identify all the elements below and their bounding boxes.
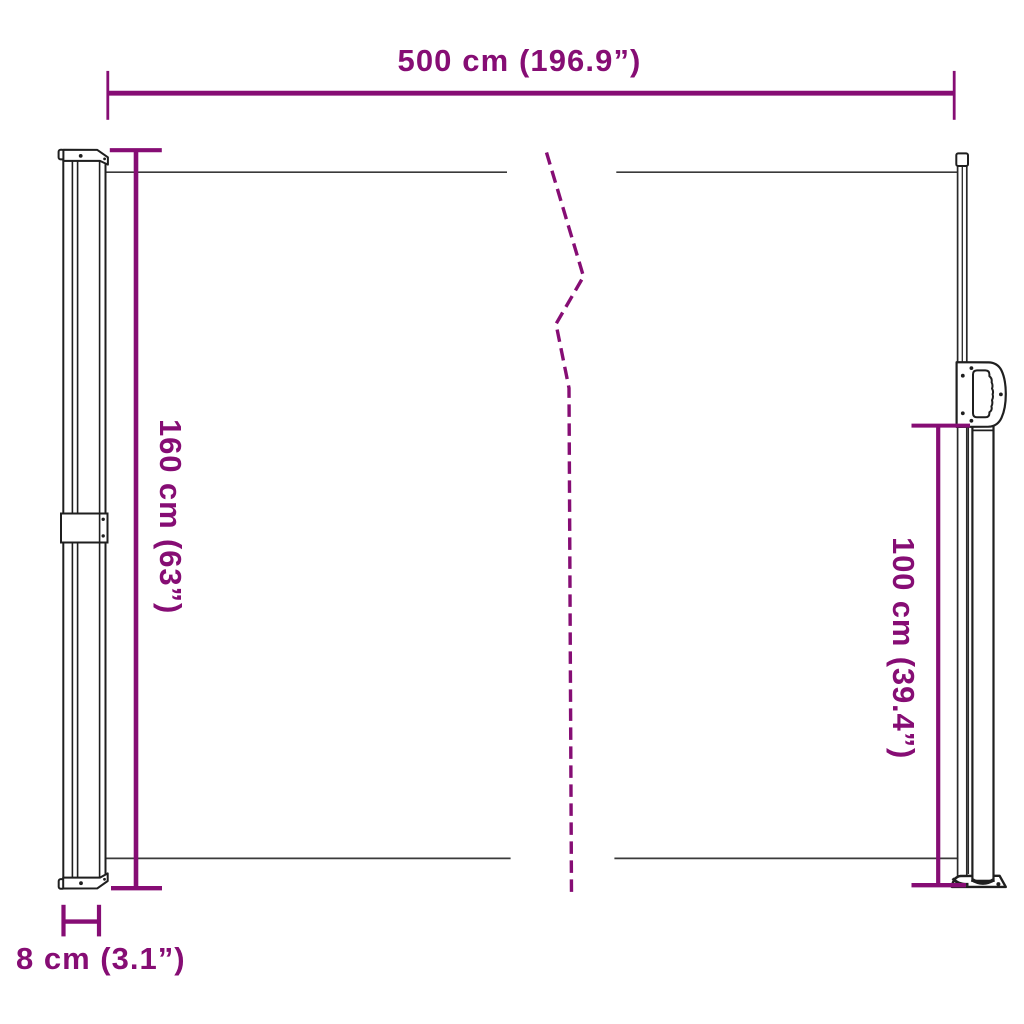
- svg-text:160 cm (63”): 160 cm (63”): [153, 419, 188, 614]
- svg-text:8 cm (3.1”): 8 cm (3.1”): [16, 941, 186, 976]
- svg-text:500 cm (196.9”): 500 cm (196.9”): [398, 43, 642, 78]
- svg-text:100 cm (39.4”): 100 cm (39.4”): [886, 537, 921, 759]
